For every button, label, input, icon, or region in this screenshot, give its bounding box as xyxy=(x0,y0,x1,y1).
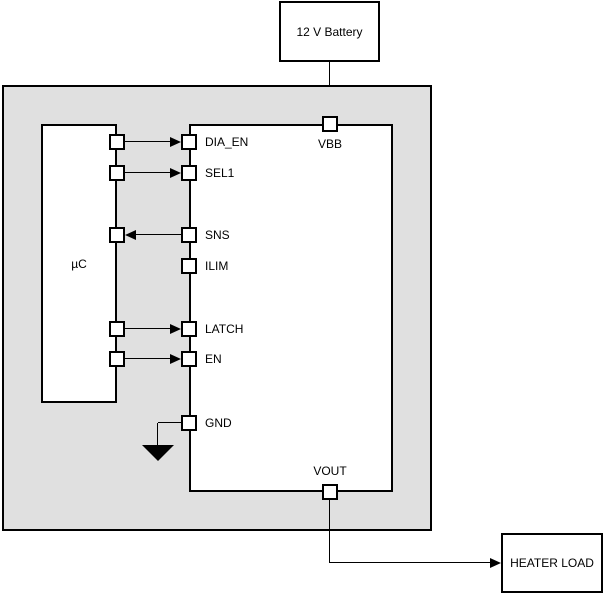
pin-label-en: EN xyxy=(205,352,222,366)
wire-gnd-vertical xyxy=(157,423,158,445)
pin-device-dia-en xyxy=(181,134,197,150)
pin-label-dia-en: DIA_EN xyxy=(205,135,248,149)
pin-device-vout xyxy=(322,484,338,500)
pin-label-ilim: ILIM xyxy=(205,259,228,273)
mcu-box: µC xyxy=(41,124,117,403)
arrow-right-icon xyxy=(170,168,181,178)
pin-device-en xyxy=(181,351,197,367)
pin-device-sel1 xyxy=(181,165,197,181)
pin-device-gnd xyxy=(181,415,197,431)
pin-device-ilim xyxy=(181,258,197,274)
arrow-right-icon xyxy=(170,354,181,364)
pin-mcu-sns xyxy=(109,227,125,243)
wire-sel1 xyxy=(125,172,171,173)
pin-label-latch: LATCH xyxy=(205,322,243,336)
wire-vout-vertical xyxy=(329,500,330,563)
pin-label-sel1: SEL1 xyxy=(205,166,234,180)
pin-label-vbb: VBB xyxy=(300,137,360,151)
arrow-right-icon xyxy=(170,137,181,147)
pin-label-vout: VOUT xyxy=(300,464,360,478)
pin-mcu-en xyxy=(109,351,125,367)
battery-label: 12 V Battery xyxy=(296,25,362,39)
arrow-right-icon xyxy=(490,558,501,568)
pin-mcu-latch xyxy=(109,321,125,337)
heater-load-label: HEATER LOAD xyxy=(510,556,594,570)
pin-label-gnd: GND xyxy=(205,416,232,430)
pin-label-sns: SNS xyxy=(205,228,230,242)
wire-vout-horizontal xyxy=(329,562,490,563)
pin-device-vbb xyxy=(322,116,338,132)
mcu-label: µC xyxy=(71,257,87,271)
arrow-right-icon xyxy=(170,324,181,334)
pin-device-sns xyxy=(181,227,197,243)
arrow-left-icon xyxy=(125,230,136,240)
wire-dia-en xyxy=(125,141,171,142)
wire-gnd-horizontal xyxy=(158,422,181,423)
battery-box: 12 V Battery xyxy=(279,1,380,62)
block-diagram: 12 V Battery µC DIA_EN SEL1 SNS ILIM LAT… xyxy=(0,0,608,596)
wire-en xyxy=(125,358,171,359)
pin-device-latch xyxy=(181,321,197,337)
pin-mcu-sel1 xyxy=(109,165,125,181)
pin-mcu-dia-en xyxy=(109,134,125,150)
ground-symbol-icon xyxy=(142,445,174,461)
heater-load-box: HEATER LOAD xyxy=(501,533,603,593)
wire-latch xyxy=(125,328,171,329)
wire-sns xyxy=(135,234,181,235)
